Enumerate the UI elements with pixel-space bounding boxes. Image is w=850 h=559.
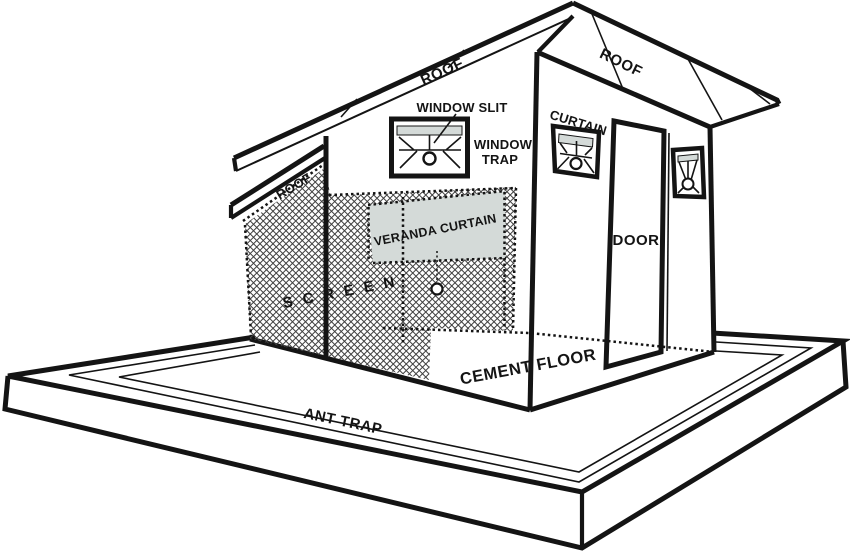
roof-label-left: ROOF [418, 55, 466, 89]
window-trap-label-line1: WINDOW [474, 137, 533, 152]
main-roof-left-tip [234, 158, 236, 171]
gable-apex-edge [538, 16, 573, 52]
right-corner-post [710, 127, 714, 352]
side-window-entry-hole [683, 179, 694, 190]
window-trap-entry-hole [424, 153, 436, 165]
side-window [667, 133, 704, 351]
window-slit-band [397, 126, 462, 135]
experimental-hut-diagram: ROOF ROOF ROOF WINDOW SLIT WINDOW TRAP C… [0, 0, 850, 559]
window-trap-label-line2: TRAP [482, 152, 518, 167]
diagram-canvas: ROOF ROOF ROOF WINDOW SLIT WINDOW TRAP C… [0, 0, 850, 559]
roof-label-right: ROOF [597, 45, 645, 80]
cement-floor-dotted-edge [383, 328, 714, 352]
ant-trap-channel-inner-line [119, 351, 782, 472]
wall-jamb-line [667, 133, 669, 351]
side-window-band [678, 154, 698, 162]
curtain-window-entry-hole [571, 158, 582, 169]
door-label: DOOR [613, 232, 660, 249]
window-slit-label: WINDOW SLIT [416, 100, 507, 115]
window-trap [392, 114, 468, 176]
curtain-pull-ring [432, 284, 443, 295]
